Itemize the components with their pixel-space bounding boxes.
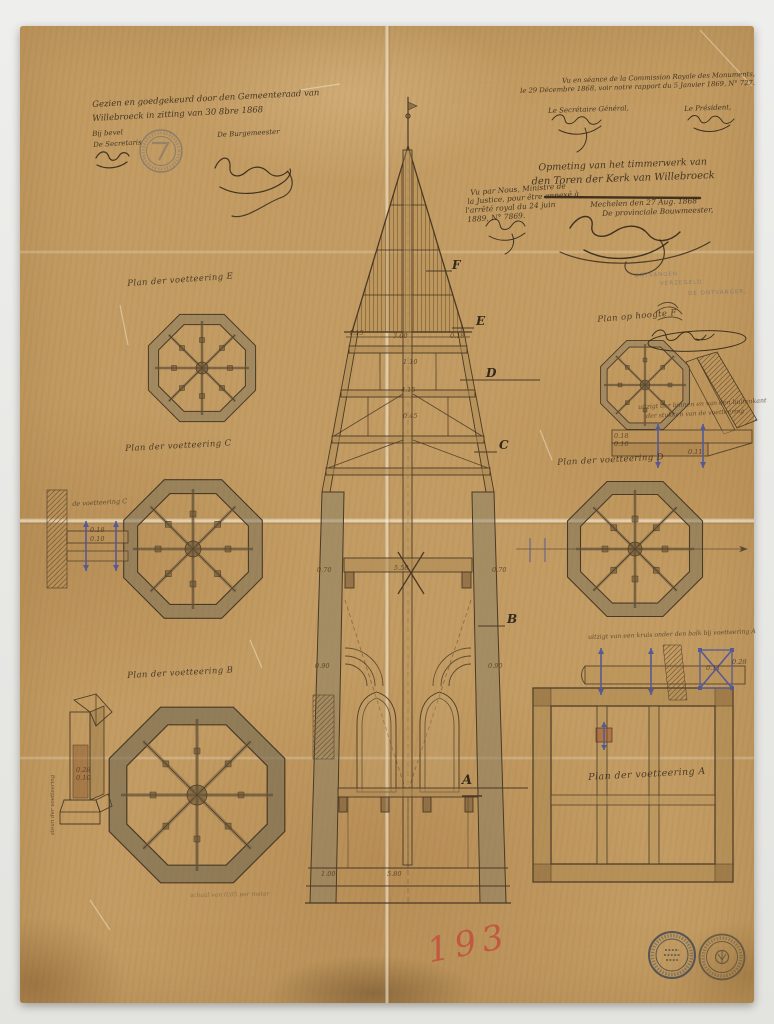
dim-lower-right: 0.90 [488, 662, 502, 670]
dim-detail-r2: 0.10 [614, 440, 628, 448]
dim-lower-left: 0.90 [315, 662, 329, 670]
dim-base-span: 5.80 [387, 870, 401, 878]
dim-post-1: 0.28 [76, 766, 90, 774]
section-letter-a: A [462, 773, 472, 788]
dim-detail-r4: 0.28 [732, 658, 746, 666]
dim-roof-width: 3.60 [393, 332, 407, 340]
section-letter-c: C [499, 438, 509, 452]
approval-by-order: Bij bevel [92, 128, 123, 138]
dim-detail-l2: 0.10 [90, 535, 104, 543]
plan-c-octagon [124, 480, 263, 619]
annotation-post-detail: steun der voetteering [50, 775, 56, 835]
dim-detail-r1: 0.18 [614, 432, 628, 440]
dim-span-mid: 5.58 [394, 564, 408, 572]
section-letter-b: B [507, 612, 517, 626]
scanned-drawing-frame: Gezien en goedgekeurd door den Gemeenter… [0, 0, 774, 1024]
dim-detail-r5: 0.11 [706, 664, 720, 672]
section-letter-e: E [476, 314, 485, 328]
municipal-stamp-top-left [140, 130, 182, 172]
dim-detail-l1: 0.18 [90, 526, 104, 534]
dim-collar-3: 0.45 [403, 412, 417, 420]
plan-b-octagon [109, 707, 285, 883]
dim-wall-right: 0.70 [492, 566, 506, 574]
dim-eave-left: 1.15 [349, 329, 363, 337]
dim-detail-r3: 0.11 [688, 448, 702, 456]
plan-a-square [533, 688, 733, 882]
dim-wall-left: 0.70 [317, 566, 331, 574]
dim-collar-2: 4.15 [401, 386, 415, 394]
commission-president: Le Président, [684, 103, 731, 113]
archive-stamps-bottom [649, 932, 745, 980]
section-letter-f: F [452, 258, 461, 272]
plan-d-octagon [516, 482, 748, 617]
dim-base-left: 1.00 [321, 870, 335, 878]
dim-eave-right: 0.18 [450, 332, 464, 340]
receiver-stamp-line2: VERZEGELD [660, 279, 703, 288]
plan-e-octagon [148, 314, 255, 421]
annotation-scale-note: schaal van 0,05 per meter [190, 891, 270, 899]
dim-collar-1: 1.10 [403, 358, 417, 366]
dim-post-2: 0.10 [76, 774, 90, 782]
section-letter-d: D [486, 366, 496, 380]
